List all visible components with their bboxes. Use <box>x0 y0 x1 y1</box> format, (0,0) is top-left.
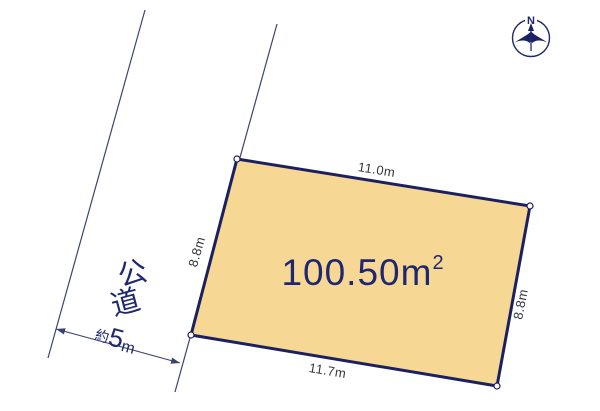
road-width-arrowhead-right <box>171 358 181 364</box>
plot-area-value: 100.50 <box>281 252 400 293</box>
dimension-left: 8.8m <box>185 235 208 269</box>
plot-vertex-bottom-right <box>494 383 500 389</box>
plot-diagram-canvas: 100.50m2 11.0m 8.8m 8.8m 11.7m 公 道 約5m N <box>0 0 600 411</box>
plot-vertex-top-right <box>527 203 533 209</box>
compass-north-label: N <box>527 15 535 27</box>
land-plot-diagram: 100.50m2 11.0m 8.8m 8.8m 11.7m 公 道 約5m N <box>0 0 600 411</box>
plot-area-label: 100.50m2 <box>281 252 444 293</box>
plot-area-unit-exponent: 2 <box>432 252 444 274</box>
dimension-bottom: 11.7m <box>308 360 348 381</box>
north-compass-icon: N <box>513 13 550 57</box>
road-width-arrowhead-left <box>56 328 66 334</box>
plot-vertex-top-left <box>234 156 240 162</box>
plot-area-unit: m <box>401 252 433 293</box>
dimension-top: 11.0m <box>357 159 397 180</box>
plot-vertex-bottom-left <box>188 332 194 338</box>
road-width-label: 約5m <box>92 318 140 358</box>
